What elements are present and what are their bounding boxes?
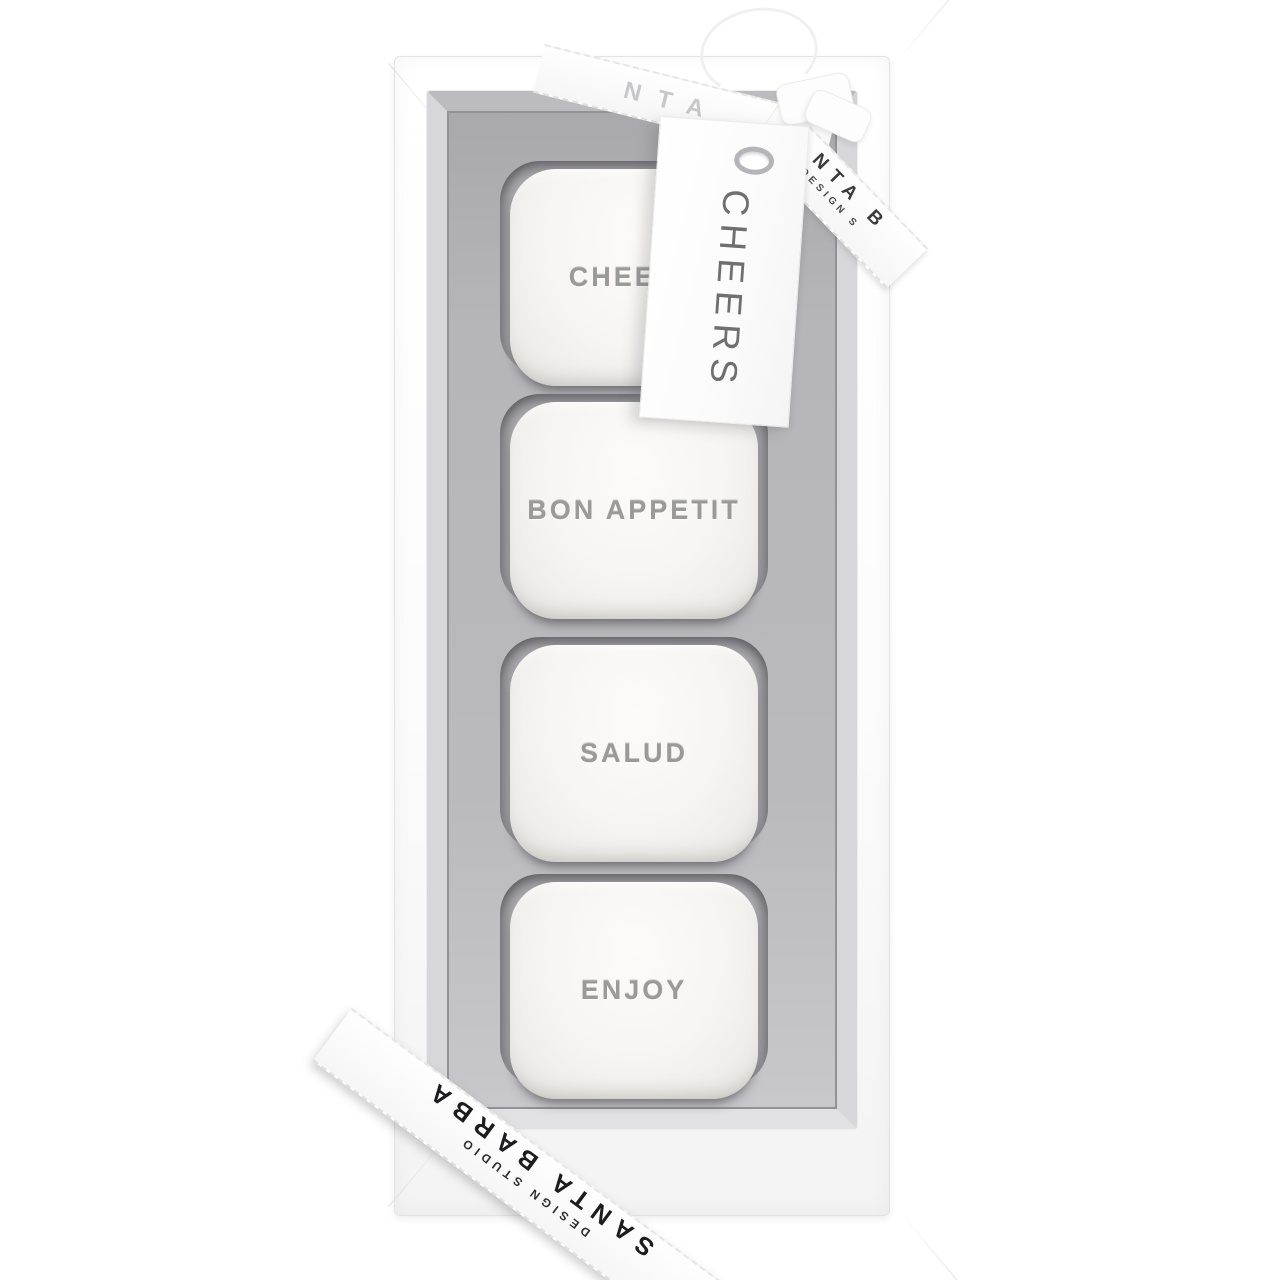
cup-cutout: SALUD (500, 637, 768, 849)
tag-hole (733, 145, 775, 176)
cup-enjoy: ENJOY (510, 882, 758, 1099)
cup-word: SALUD (580, 738, 688, 769)
cup-cutout: ENJOY (500, 874, 768, 1086)
hang-tag: CHEERS (639, 116, 810, 428)
tag-label: CHEERS (701, 188, 757, 393)
cup-word: ENJOY (581, 975, 688, 1006)
cup-cutout: BON APPETIT (500, 394, 768, 606)
cup-salud: SALUD (510, 645, 758, 862)
gift-box: CHEERS BON APPETIT SALUD ENJOY (394, 56, 890, 1216)
lid-crease-top-right (895, 0, 963, 64)
cup-bon-appetit: BON APPETIT (510, 402, 758, 619)
lid-crease-bottom-right (895, 1206, 963, 1280)
cup-word: BON APPETIT (527, 495, 741, 526)
product-photo: CHEERS BON APPETIT SALUD ENJOY (0, 0, 1280, 1280)
